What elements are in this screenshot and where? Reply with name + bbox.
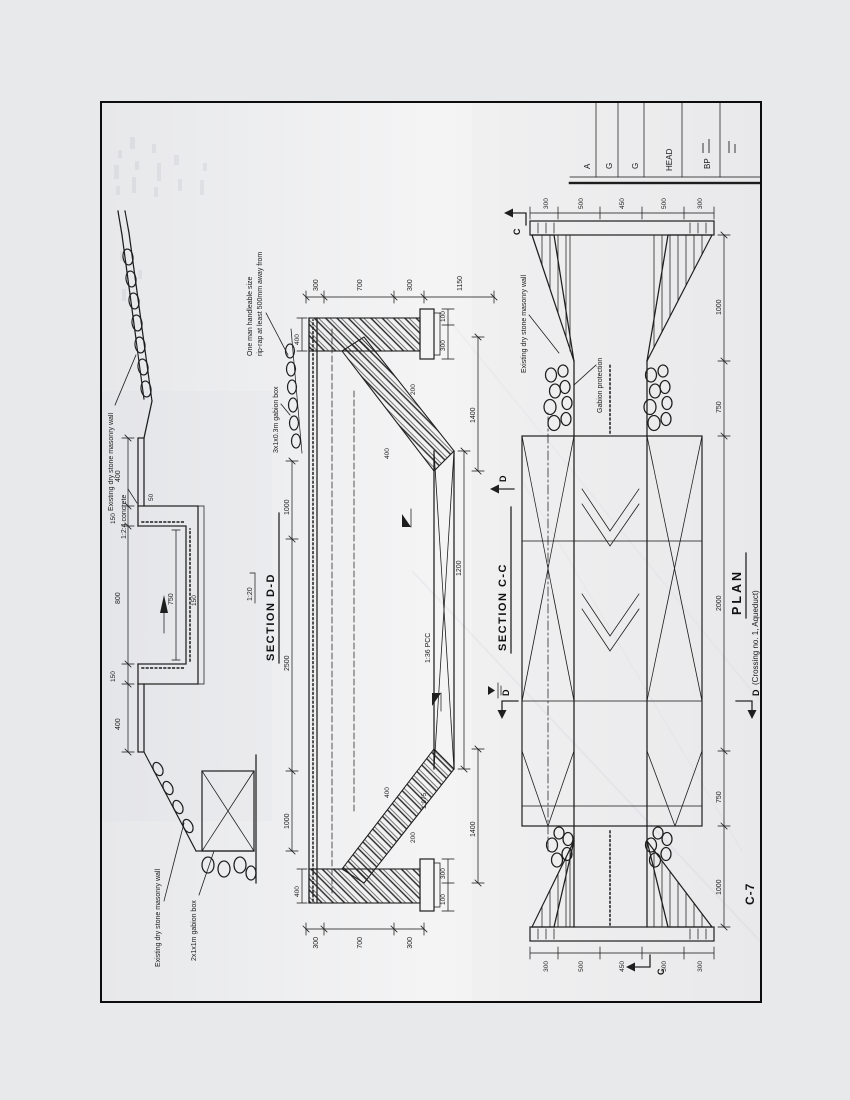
note-gabion-left: 2x1x1m gabion box	[191, 900, 198, 961]
dim-label: 300	[313, 937, 320, 949]
dim-label: 300	[407, 937, 414, 949]
dim-label: 400	[384, 787, 391, 798]
dim-label: 750	[716, 401, 723, 413]
marker-label: C	[512, 228, 522, 235]
dim-label: 750	[168, 593, 175, 605]
dim-label: 2500	[284, 655, 291, 671]
dim-label: 150	[191, 595, 198, 606]
dim-label: 500	[578, 961, 585, 972]
dim-label: 2000	[716, 595, 723, 611]
note-pcc: 1:36 PCC	[425, 633, 432, 663]
dim-label: 300	[440, 340, 447, 351]
note-slope: 1:20	[247, 587, 254, 601]
note-masonry-wall-right: Existing dry stone masonry wall	[108, 413, 115, 511]
dim-label: 1000	[716, 879, 723, 895]
dim-label: 1400	[470, 407, 477, 423]
marker-label: D	[751, 689, 760, 696]
table-cell: A	[583, 163, 592, 169]
dim-label: 100	[440, 894, 447, 905]
note-masonry-wall: Existing dry stone masonry wall	[521, 275, 528, 373]
dim-label: 300	[543, 198, 550, 209]
table-cell: HEAD	[665, 149, 674, 171]
dim-label: 400	[115, 470, 122, 482]
drawing-canvas: 400 150 800 150 400	[102, 103, 760, 1001]
plan-subtitle: (Crossing no. 1, Aqueduct)	[751, 590, 760, 685]
table-cell: G	[631, 163, 640, 169]
dim-label: 800	[115, 592, 122, 604]
dim-label: 400	[115, 718, 122, 730]
table-cell: BP	[703, 158, 712, 169]
marker-label: D	[498, 475, 508, 482]
dim-label: 1150	[457, 276, 464, 291]
section-dd-title: SECTION D-D	[265, 573, 277, 661]
dim-label: 50	[148, 493, 155, 501]
dim-label: 150	[110, 513, 117, 524]
plan-title: PLAN	[730, 569, 744, 615]
note-riprap-2: rip-rap at least 500mm away from	[257, 252, 264, 356]
note-gabion-right: 3x1x0.3m gabion box	[273, 386, 280, 453]
dim-label: 700	[357, 937, 364, 949]
dim-label: 200	[410, 832, 417, 843]
marker-label: C	[656, 968, 666, 975]
dim-label: 1400	[470, 821, 477, 837]
dim-label: 400	[294, 334, 301, 345]
screenshot-root: { "colors": {"page_bg": "#e8e9eb", "pape…	[0, 0, 850, 1100]
note-riprap-1: One man handleable size	[247, 277, 254, 356]
dim-label: 1200	[456, 560, 463, 576]
dim-label: 300	[313, 279, 320, 291]
dim-label: 450	[619, 961, 626, 972]
dim-label: 300	[407, 279, 414, 291]
dim-label: 1000	[284, 499, 291, 515]
section-cc-title: SECTION C-C	[497, 563, 509, 651]
dim-label: 300	[697, 198, 704, 209]
dim-label: 200	[410, 384, 417, 395]
dim-label: 500	[661, 198, 668, 209]
note-masonry-wall-left: Existing dry stone masonry wall	[155, 869, 162, 967]
dim-label: 300	[543, 961, 550, 972]
dim-label: 1000	[284, 813, 291, 829]
dim-label: 300	[697, 961, 704, 972]
marker-label: D	[501, 689, 511, 696]
scanned-sheet: 400 150 800 150 400	[100, 101, 762, 1003]
dim-label: 400	[294, 886, 301, 897]
dim-label: 500	[578, 198, 585, 209]
note-bed-slope: 1:975	[421, 792, 428, 809]
note-concrete: 1:2:4 concrete	[121, 495, 128, 539]
dim-label: 400	[384, 448, 391, 459]
dim-label: 100	[440, 311, 447, 322]
table-cell: G	[605, 163, 614, 169]
dim-label: 300	[440, 868, 447, 879]
dim-label: 1000	[716, 299, 723, 315]
note-gabion-protection: Gabion protection	[597, 358, 604, 413]
dim-label: 700	[357, 279, 364, 291]
rotated-drawing: 400 150 800 150 400	[102, 103, 760, 1001]
dim-label: 750	[716, 791, 723, 803]
dim-label: 150	[110, 671, 117, 682]
dim-label: 450	[619, 198, 626, 209]
drawing-number: C-7	[743, 883, 757, 905]
